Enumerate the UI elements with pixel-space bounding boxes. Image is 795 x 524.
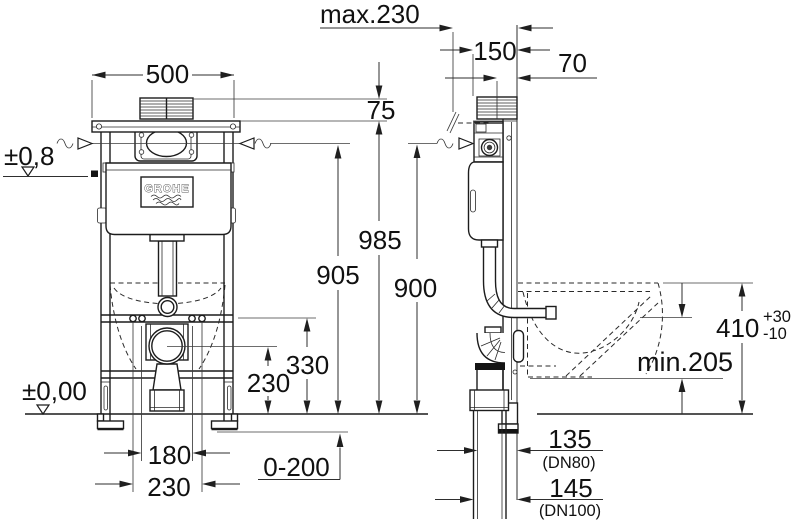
dim-front-inlet-label: 905 <box>316 260 359 290</box>
dim-side-depth: 150 <box>440 36 550 96</box>
dim-dn80-label: 135 <box>548 424 591 454</box>
dim-side-rim-plus-label: +30 <box>763 308 791 326</box>
dim-side-inlet-height: 900 <box>394 145 437 415</box>
dim-bolt-spacing-outer: 230 <box>95 472 240 502</box>
dim-bolt-inner-label: 180 <box>148 440 191 470</box>
adjustable-feet <box>98 414 238 430</box>
dim-outlet-dn80: 135 (DN80) <box>437 424 603 472</box>
dim-foot-range: 0-200 <box>258 434 343 483</box>
dim-side-inlet-label: 900 <box>394 273 437 303</box>
datum-floor-label: ±0,00 <box>22 376 87 406</box>
front-view: GROHE <box>92 98 240 430</box>
brand-text: GROHE <box>144 183 189 195</box>
dim-outlet-dn100: 145 (DN100) <box>435 473 603 520</box>
datum-floor: ±0,00 <box>22 376 87 414</box>
drawing-canvas: GROHE <box>0 0 795 524</box>
dim-side-rod-offset: 70 <box>445 48 597 97</box>
threaded-rod-block-front <box>140 98 193 119</box>
dim-front-bolt-label: 330 <box>286 350 329 380</box>
installation-frame-drawing: GROHE <box>0 0 795 524</box>
flush-pipe-side <box>482 240 557 319</box>
dim-front-drain-label: 230 <box>247 368 290 398</box>
dim-side-depth-label: 150 <box>473 36 516 66</box>
dim-front-bolt-height: 330 <box>238 318 329 414</box>
dim-front-gap-label: 75 <box>367 95 396 125</box>
water-inlet-arrow-side <box>408 138 473 149</box>
cistern-side <box>469 122 504 240</box>
dim-side-rim-label: 410 <box>716 313 759 343</box>
dim-side-zone-label: min.205 <box>637 347 733 377</box>
dim-bolt-outer-label: 230 <box>147 472 190 502</box>
cistern-front: GROHE <box>103 163 234 235</box>
threaded-rod-block-side <box>473 97 517 124</box>
flush-pipe-front <box>150 235 184 317</box>
dim-side-rim-minus-label: -10 <box>763 325 787 343</box>
dim-side-max-depth-label: max.230 <box>320 0 420 29</box>
top-rail <box>92 121 240 132</box>
dim-side-max-depth: max.230 <box>320 0 553 112</box>
floor-lines <box>25 414 753 432</box>
drain-assembly <box>146 324 188 411</box>
dim-dn100-label: 145 <box>549 473 592 503</box>
dim-dn100-size-label: (DN100) <box>539 502 601 520</box>
dim-dn80-size-label: (DN80) <box>542 454 595 472</box>
dim-side-rod-label: 70 <box>558 48 587 78</box>
dim-foot-range-label: 0-200 <box>263 452 330 482</box>
dim-front-total-label: 985 <box>358 225 401 255</box>
dim-front-width-label: 500 <box>146 59 189 89</box>
